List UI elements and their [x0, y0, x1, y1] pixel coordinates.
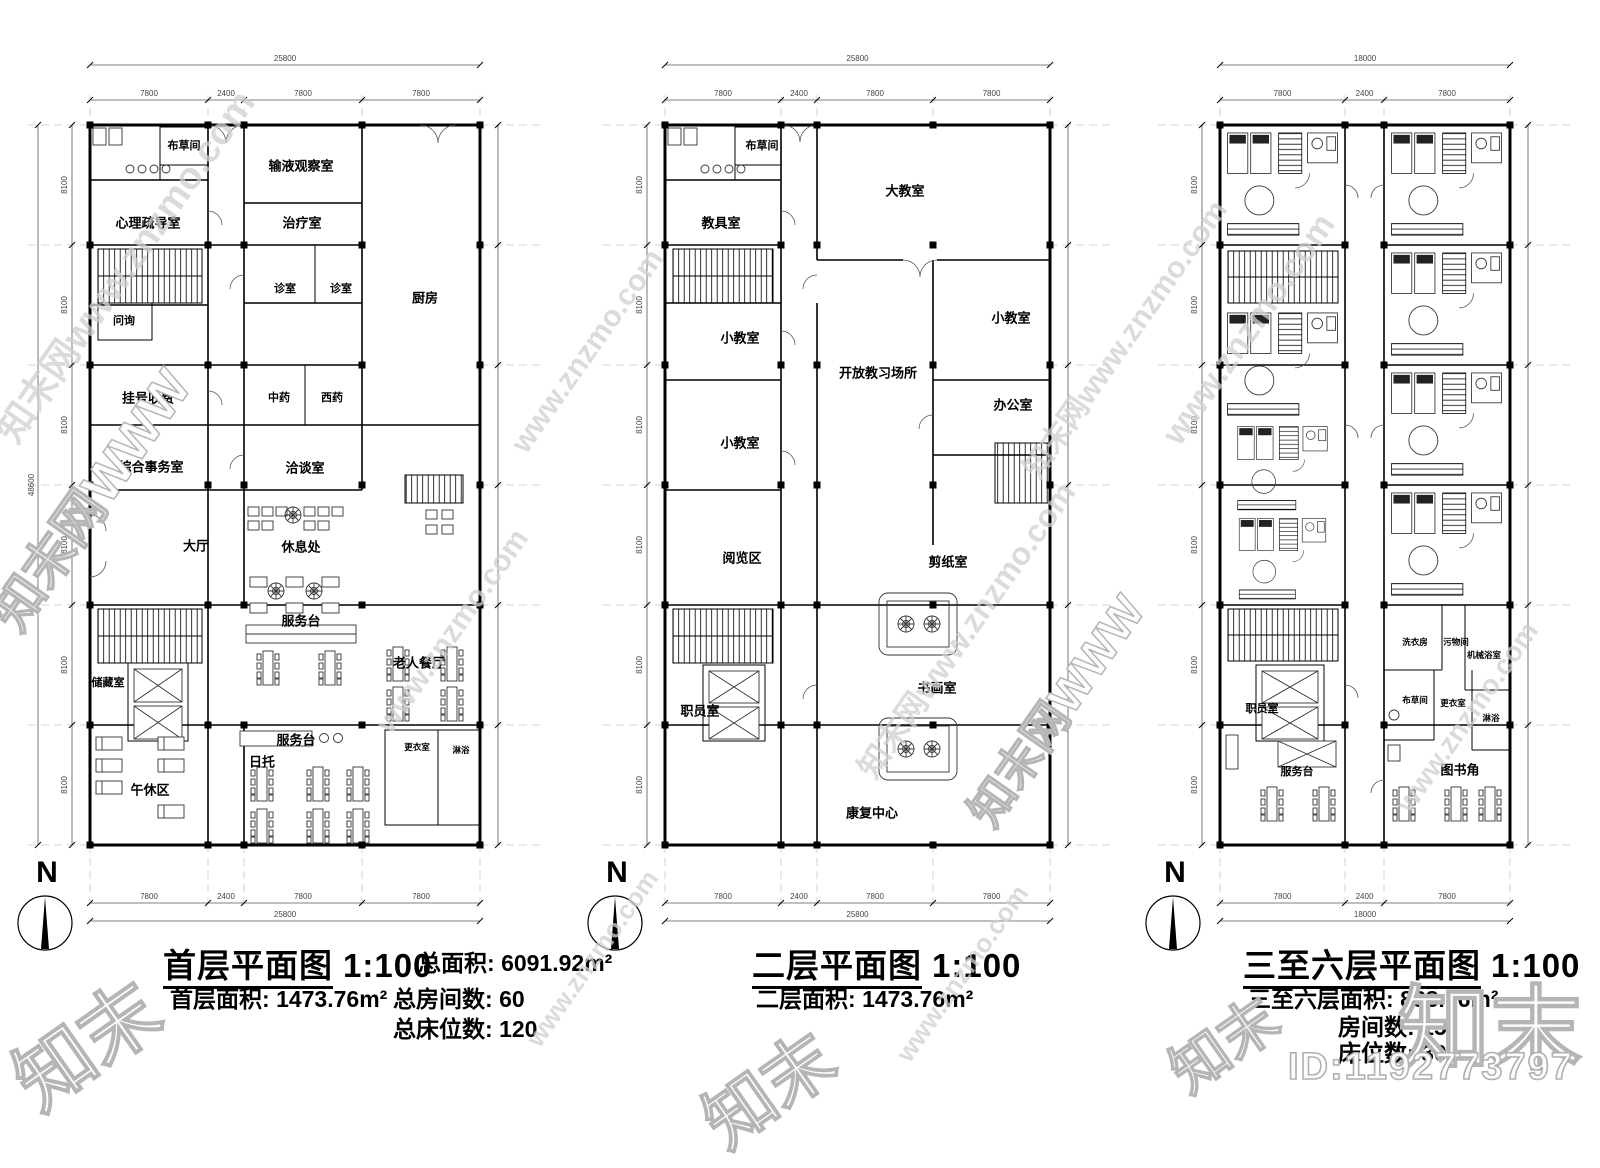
column-marker [1342, 602, 1349, 609]
north-label: N [17, 858, 77, 888]
column-marker [1047, 122, 1054, 129]
dim-label: 7800 [983, 89, 1001, 98]
column-marker [477, 482, 484, 489]
room-label: 综合事务室 [118, 457, 183, 476]
room-label: 挂号收费 [122, 388, 174, 407]
dim-total-label: 25800 [846, 910, 869, 919]
column-marker [1507, 122, 1514, 129]
dim-label: 7800 [294, 892, 312, 901]
column-marker [662, 122, 669, 129]
dim-label: 7800 [1438, 892, 1456, 901]
room-label: 中药 [268, 389, 290, 405]
column-marker [477, 122, 484, 129]
column-marker [662, 242, 669, 249]
column-marker [241, 722, 248, 729]
room-label: 服务台 [1281, 763, 1314, 779]
column-marker [778, 362, 785, 369]
column-marker [359, 602, 366, 609]
room-label: 教具室 [701, 213, 740, 232]
column-marker [1217, 122, 1224, 129]
column-marker [359, 242, 366, 249]
dim-label: 2400 [1356, 892, 1374, 901]
dim-label: 7800 [866, 892, 884, 901]
column-marker [241, 842, 248, 849]
column-marker [778, 842, 785, 849]
dim-label: 8100 [60, 776, 69, 794]
dim-label: 8100 [1190, 656, 1199, 674]
column-marker [1507, 602, 1514, 609]
column-marker [241, 122, 248, 129]
column-marker [87, 722, 94, 729]
column-marker [477, 842, 484, 849]
column-marker [241, 242, 248, 249]
column-marker [778, 242, 785, 249]
column-marker [930, 602, 937, 609]
room-label: 小教室 [991, 308, 1030, 327]
cad-floorplan-sheet: { "north": "N", "id_text": "ID:119277379… [0, 0, 1600, 1115]
room-label: 服务台 [276, 730, 315, 749]
column-marker [1217, 242, 1224, 249]
watermark-id: ID:1192773797 [1288, 1046, 1574, 1089]
dim-label: 8100 [60, 176, 69, 194]
dim-label: 8100 [635, 416, 644, 434]
column-marker [87, 362, 94, 369]
room-label: 诊室 [274, 280, 296, 296]
dim-label: 2400 [1356, 89, 1374, 98]
dim-label: 8100 [635, 176, 644, 194]
column-marker [930, 842, 937, 849]
column-marker [1381, 722, 1388, 729]
room-label: 小教室 [720, 328, 759, 347]
column-marker [814, 602, 821, 609]
column-marker [662, 722, 669, 729]
dim-label: 8100 [60, 656, 69, 674]
north-label: N [1145, 858, 1205, 888]
column-marker [1381, 602, 1388, 609]
dim-label: 7800 [140, 89, 158, 98]
dim-label: 8100 [1190, 536, 1199, 554]
dim-label: 7800 [1274, 892, 1292, 901]
room-label: 大厅 [183, 536, 209, 555]
column-marker [1381, 242, 1388, 249]
north-arrow: N [1145, 858, 1205, 961]
column-marker [359, 482, 366, 489]
room-label: 洽谈室 [285, 458, 324, 477]
dim-label: 7800 [1274, 89, 1292, 98]
column-marker [1342, 722, 1349, 729]
column-marker [930, 122, 937, 129]
plan2-linework: 7800780024002400780078007800780025800258… [603, 54, 1112, 924]
room-label: 午休区 [130, 780, 169, 799]
dim-label: 7800 [294, 89, 312, 98]
column-marker [87, 602, 94, 609]
room-label: 布草间 [168, 137, 201, 153]
column-marker [778, 602, 785, 609]
column-marker [205, 722, 212, 729]
column-marker [1047, 722, 1054, 729]
room-label: 心理疏导室 [115, 213, 180, 232]
column-marker [1342, 362, 1349, 369]
column-marker [814, 482, 821, 489]
column-marker [205, 602, 212, 609]
room-label: 更衣室 [404, 741, 430, 753]
plan1-linework: 7800780024002400780078007800780025800258… [27, 54, 542, 924]
column-marker [1381, 362, 1388, 369]
dim-label: 7800 [412, 892, 430, 901]
column-marker [1217, 602, 1224, 609]
room-label: 剪纸室 [928, 552, 967, 571]
dim-label: 8100 [635, 776, 644, 794]
room-label: 污物间 [1443, 636, 1469, 648]
column-marker [87, 482, 94, 489]
column-marker [814, 122, 821, 129]
room-label: 厨房 [412, 288, 438, 307]
dim-total-label: 25800 [274, 910, 297, 919]
plan1-room-count: 总房间数: 60 [393, 980, 525, 1014]
north-label: N [587, 858, 647, 888]
column-marker [477, 602, 484, 609]
column-marker [205, 362, 212, 369]
plan1-total-area: 总面积: 6091.92m² [418, 944, 612, 978]
column-marker [1507, 362, 1514, 369]
column-marker [241, 602, 248, 609]
dim-label: 8100 [1190, 776, 1199, 794]
column-marker [1047, 482, 1054, 489]
room-label: 职员室 [1246, 700, 1279, 716]
column-marker [1342, 482, 1349, 489]
room-label: 书画室 [917, 678, 956, 697]
column-marker [1217, 362, 1224, 369]
column-marker [1381, 482, 1388, 489]
room-label: 办公室 [993, 395, 1032, 414]
north-arrow: N [587, 858, 647, 961]
column-marker [778, 482, 785, 489]
column-marker [1507, 242, 1514, 249]
column-marker [930, 722, 937, 729]
room-label: 职员室 [680, 701, 719, 720]
column-marker [1047, 842, 1054, 849]
room-label: 阅览区 [722, 548, 761, 567]
column-marker [1217, 722, 1224, 729]
column-marker [1047, 242, 1054, 249]
column-marker [1507, 722, 1514, 729]
column-marker [359, 122, 366, 129]
plan1-floor-area: 首层面积: 1473.76m² [170, 980, 387, 1014]
column-marker [205, 842, 212, 849]
column-marker [87, 242, 94, 249]
room-label: 布草间 [1402, 694, 1428, 706]
column-marker [477, 362, 484, 369]
column-marker [814, 242, 821, 249]
column-marker [1381, 842, 1388, 849]
column-marker [930, 242, 937, 249]
dim-label: 8100 [60, 296, 69, 314]
room-label: 治疗室 [282, 213, 321, 232]
dim-label: 8100 [1190, 296, 1199, 314]
column-marker [477, 722, 484, 729]
room-label: 休息处 [281, 537, 320, 556]
dim-label: 7800 [866, 89, 884, 98]
dim-total-label: 48600 [27, 473, 36, 496]
room-label: 问询 [113, 312, 135, 328]
dim-label: 8100 [1190, 176, 1199, 194]
dim-total-label: 25800 [846, 54, 869, 63]
column-marker [778, 122, 785, 129]
room-label: 老人餐厅 [393, 653, 445, 672]
dim-label: 7800 [983, 892, 1001, 901]
room-label: 机械浴室 [1467, 649, 1501, 661]
column-marker [477, 242, 484, 249]
column-marker [241, 482, 248, 489]
compass-icon [1145, 888, 1205, 956]
column-marker [1381, 122, 1388, 129]
north-arrow: N [17, 858, 77, 961]
dim-total-label: 18000 [1354, 910, 1377, 919]
dim-label: 8100 [60, 536, 69, 554]
plan3-linework: 7800780024002400780078001800018000810081… [1158, 54, 1572, 924]
room-label: 布草间 [746, 137, 779, 153]
dim-label: 7800 [1438, 89, 1456, 98]
room-label: 诊室 [330, 280, 352, 296]
dim-label: 2400 [217, 89, 235, 98]
room-label: 服务台 [281, 611, 320, 630]
dim-total-label: 25800 [274, 54, 297, 63]
dim-label: 2400 [790, 892, 808, 901]
dim-label: 7800 [714, 89, 732, 98]
room-label: 开放教习场所 [839, 363, 917, 382]
dim-label: 8100 [635, 656, 644, 674]
column-marker [87, 122, 94, 129]
column-marker [241, 362, 248, 369]
room-label: 淋浴 [1482, 712, 1499, 724]
room-label: 洗衣房 [1402, 636, 1428, 648]
dim-label: 8100 [635, 296, 644, 314]
column-marker [662, 362, 669, 369]
column-marker [930, 482, 937, 489]
column-marker [1342, 842, 1349, 849]
column-marker [778, 722, 785, 729]
column-marker [930, 362, 937, 369]
compass-icon [17, 888, 77, 956]
column-marker [1047, 602, 1054, 609]
dim-label: 7800 [714, 892, 732, 901]
column-marker [662, 482, 669, 489]
dim-label: 8100 [635, 536, 644, 554]
compass-icon [587, 888, 647, 956]
column-marker [359, 362, 366, 369]
dim-total-label: 18000 [1354, 54, 1377, 63]
column-marker [87, 842, 94, 849]
column-marker [662, 602, 669, 609]
room-label: 更衣室 [1440, 697, 1466, 709]
column-marker [1217, 842, 1224, 849]
column-marker [1507, 842, 1514, 849]
column-marker [662, 842, 669, 849]
room-label: 图书角 [1440, 760, 1479, 779]
room-label: 储藏室 [92, 674, 125, 690]
dim-label: 7800 [412, 89, 430, 98]
column-marker [205, 122, 212, 129]
column-marker [1217, 482, 1224, 489]
dim-label: 8100 [1190, 416, 1199, 434]
column-marker [814, 362, 821, 369]
room-label: 康复中心 [846, 803, 898, 822]
column-marker [1342, 242, 1349, 249]
column-marker [1507, 482, 1514, 489]
room-label: 日托 [249, 752, 275, 771]
column-marker [1342, 122, 1349, 129]
plan2-floor-area: 二层面积: 1473.76m² [756, 980, 973, 1014]
room-label: 西药 [321, 389, 343, 405]
room-label: 大教室 [885, 181, 924, 200]
column-marker [359, 842, 366, 849]
dim-label: 7800 [140, 892, 158, 901]
column-marker [814, 842, 821, 849]
column-marker [814, 722, 821, 729]
column-marker [205, 482, 212, 489]
dim-label: 2400 [790, 89, 808, 98]
dim-label: 2400 [217, 892, 235, 901]
room-label: 小教室 [720, 433, 759, 452]
room-label: 淋浴 [452, 744, 469, 756]
column-marker [1047, 362, 1054, 369]
plan1-bed-count: 总床位数: 120 [393, 1010, 537, 1044]
column-marker [359, 722, 366, 729]
column-marker [205, 242, 212, 249]
dim-label: 8100 [60, 416, 69, 434]
room-label: 输液观察室 [268, 156, 333, 175]
